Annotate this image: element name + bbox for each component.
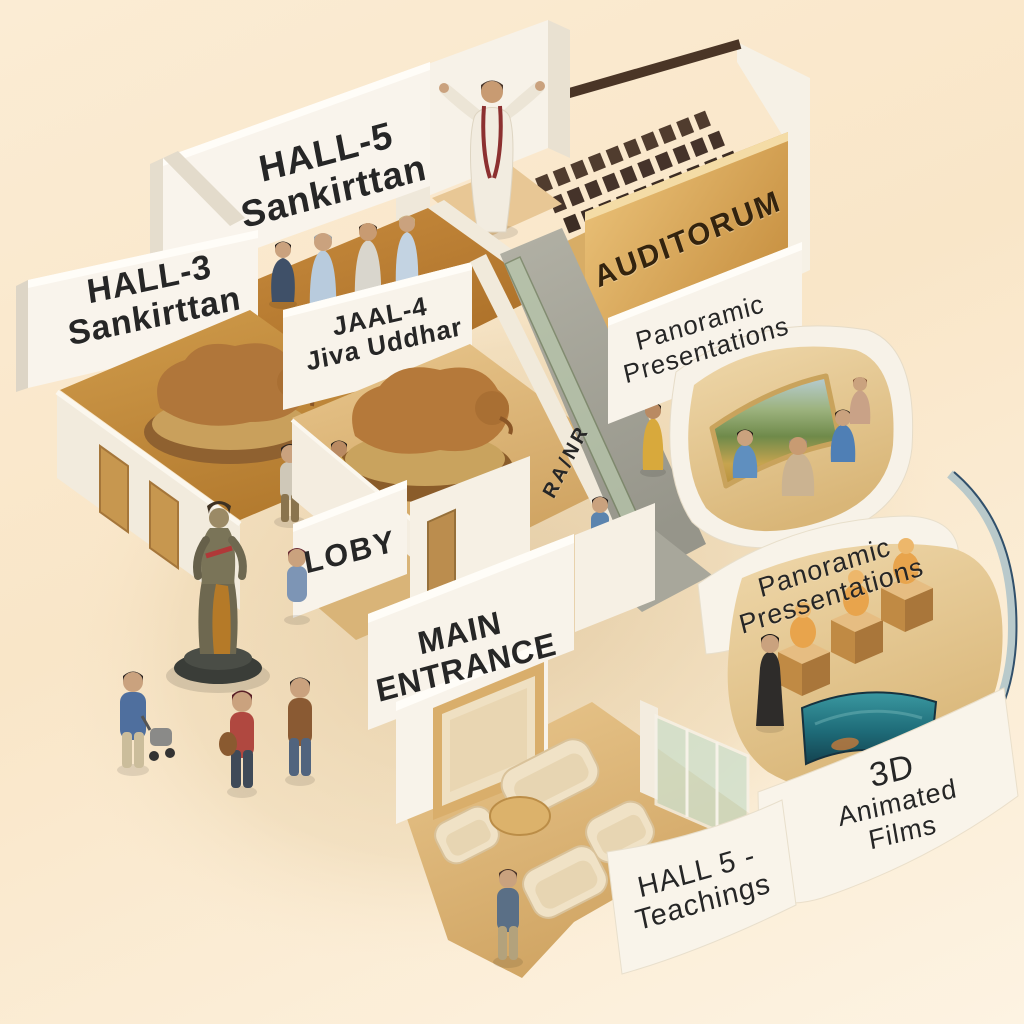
- building-illustration: [0, 0, 1024, 1024]
- handbag: [219, 732, 237, 756]
- visitor-figure: [269, 242, 297, 310]
- isometric-floorplan-scene: HALL-5 Sankirttan HALL-3 Sankirttan JAAL…: [0, 0, 1024, 1024]
- coffee-table: [490, 797, 550, 835]
